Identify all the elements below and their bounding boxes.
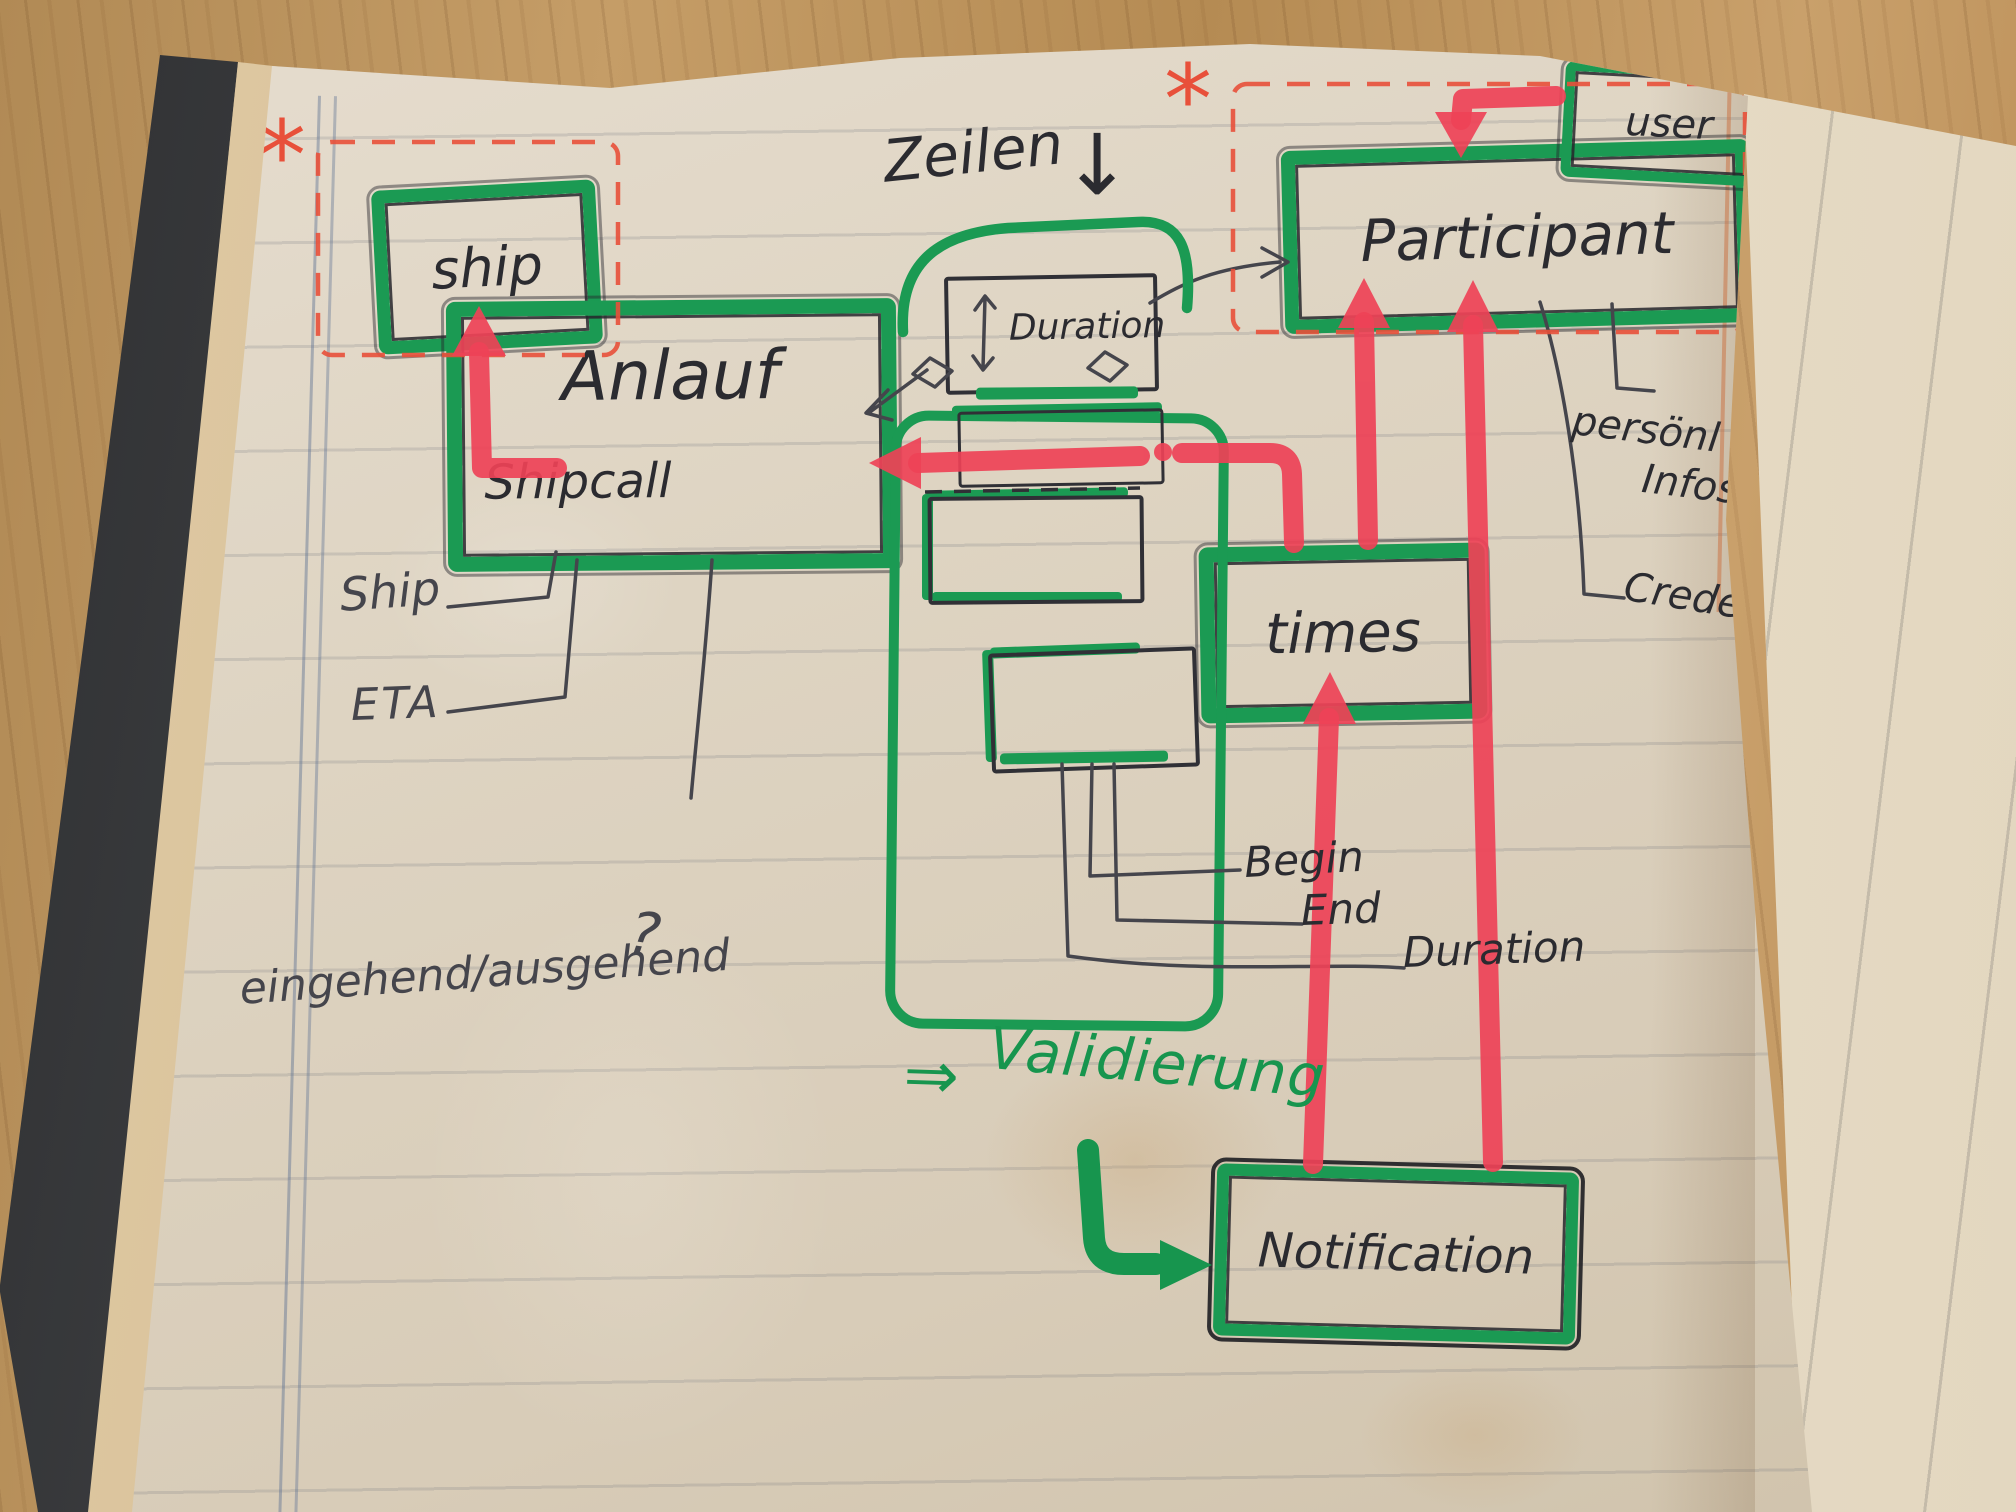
shipcall-entity-label-2: Shipcall xyxy=(484,453,672,511)
shipcall-entity-label-1: Anlauf xyxy=(561,336,779,417)
ship-entity-label: ship xyxy=(430,233,545,302)
user-entity-box: user xyxy=(1560,61,1778,188)
duration-box: Duration xyxy=(944,273,1159,395)
shipcall-entity-box: Anlauf Shipcall xyxy=(446,298,898,572)
arrow-down-icon: ↓ xyxy=(1062,116,1132,214)
eta-attr-label: ETA xyxy=(350,677,441,731)
coffee-stain xyxy=(1360,1360,1590,1510)
duration-attr-label: Duration xyxy=(1402,922,1586,977)
implies-arrow-icon: ⇒ xyxy=(902,1036,960,1115)
times-entity-box: times xyxy=(1198,543,1487,724)
end-attr-label: End xyxy=(1300,883,1381,935)
record-box-1 xyxy=(957,408,1164,488)
times-entity-label: times xyxy=(1265,599,1422,667)
record-box-2 xyxy=(928,495,1145,605)
user-entity-label: user xyxy=(1624,99,1714,150)
notebook-photo: ship Anlauf Shipcall Participant user ti… xyxy=(0,0,2016,1512)
duration-box-label: Duration xyxy=(1009,305,1166,349)
required-asterisk-icon: * xyxy=(1164,52,1212,148)
notebook-page: ship Anlauf Shipcall Participant user ti… xyxy=(0,0,2016,1512)
ship-attr-label: Ship xyxy=(338,561,442,622)
record-box-3 xyxy=(988,646,1200,773)
notification-entity-label: Notification xyxy=(1257,1222,1535,1285)
green-underline xyxy=(976,386,1138,399)
begin-attr-label: Begin xyxy=(1243,832,1365,887)
participant-entity-label: Participant xyxy=(1360,198,1675,274)
notification-entity-box: Notification xyxy=(1213,1163,1579,1344)
